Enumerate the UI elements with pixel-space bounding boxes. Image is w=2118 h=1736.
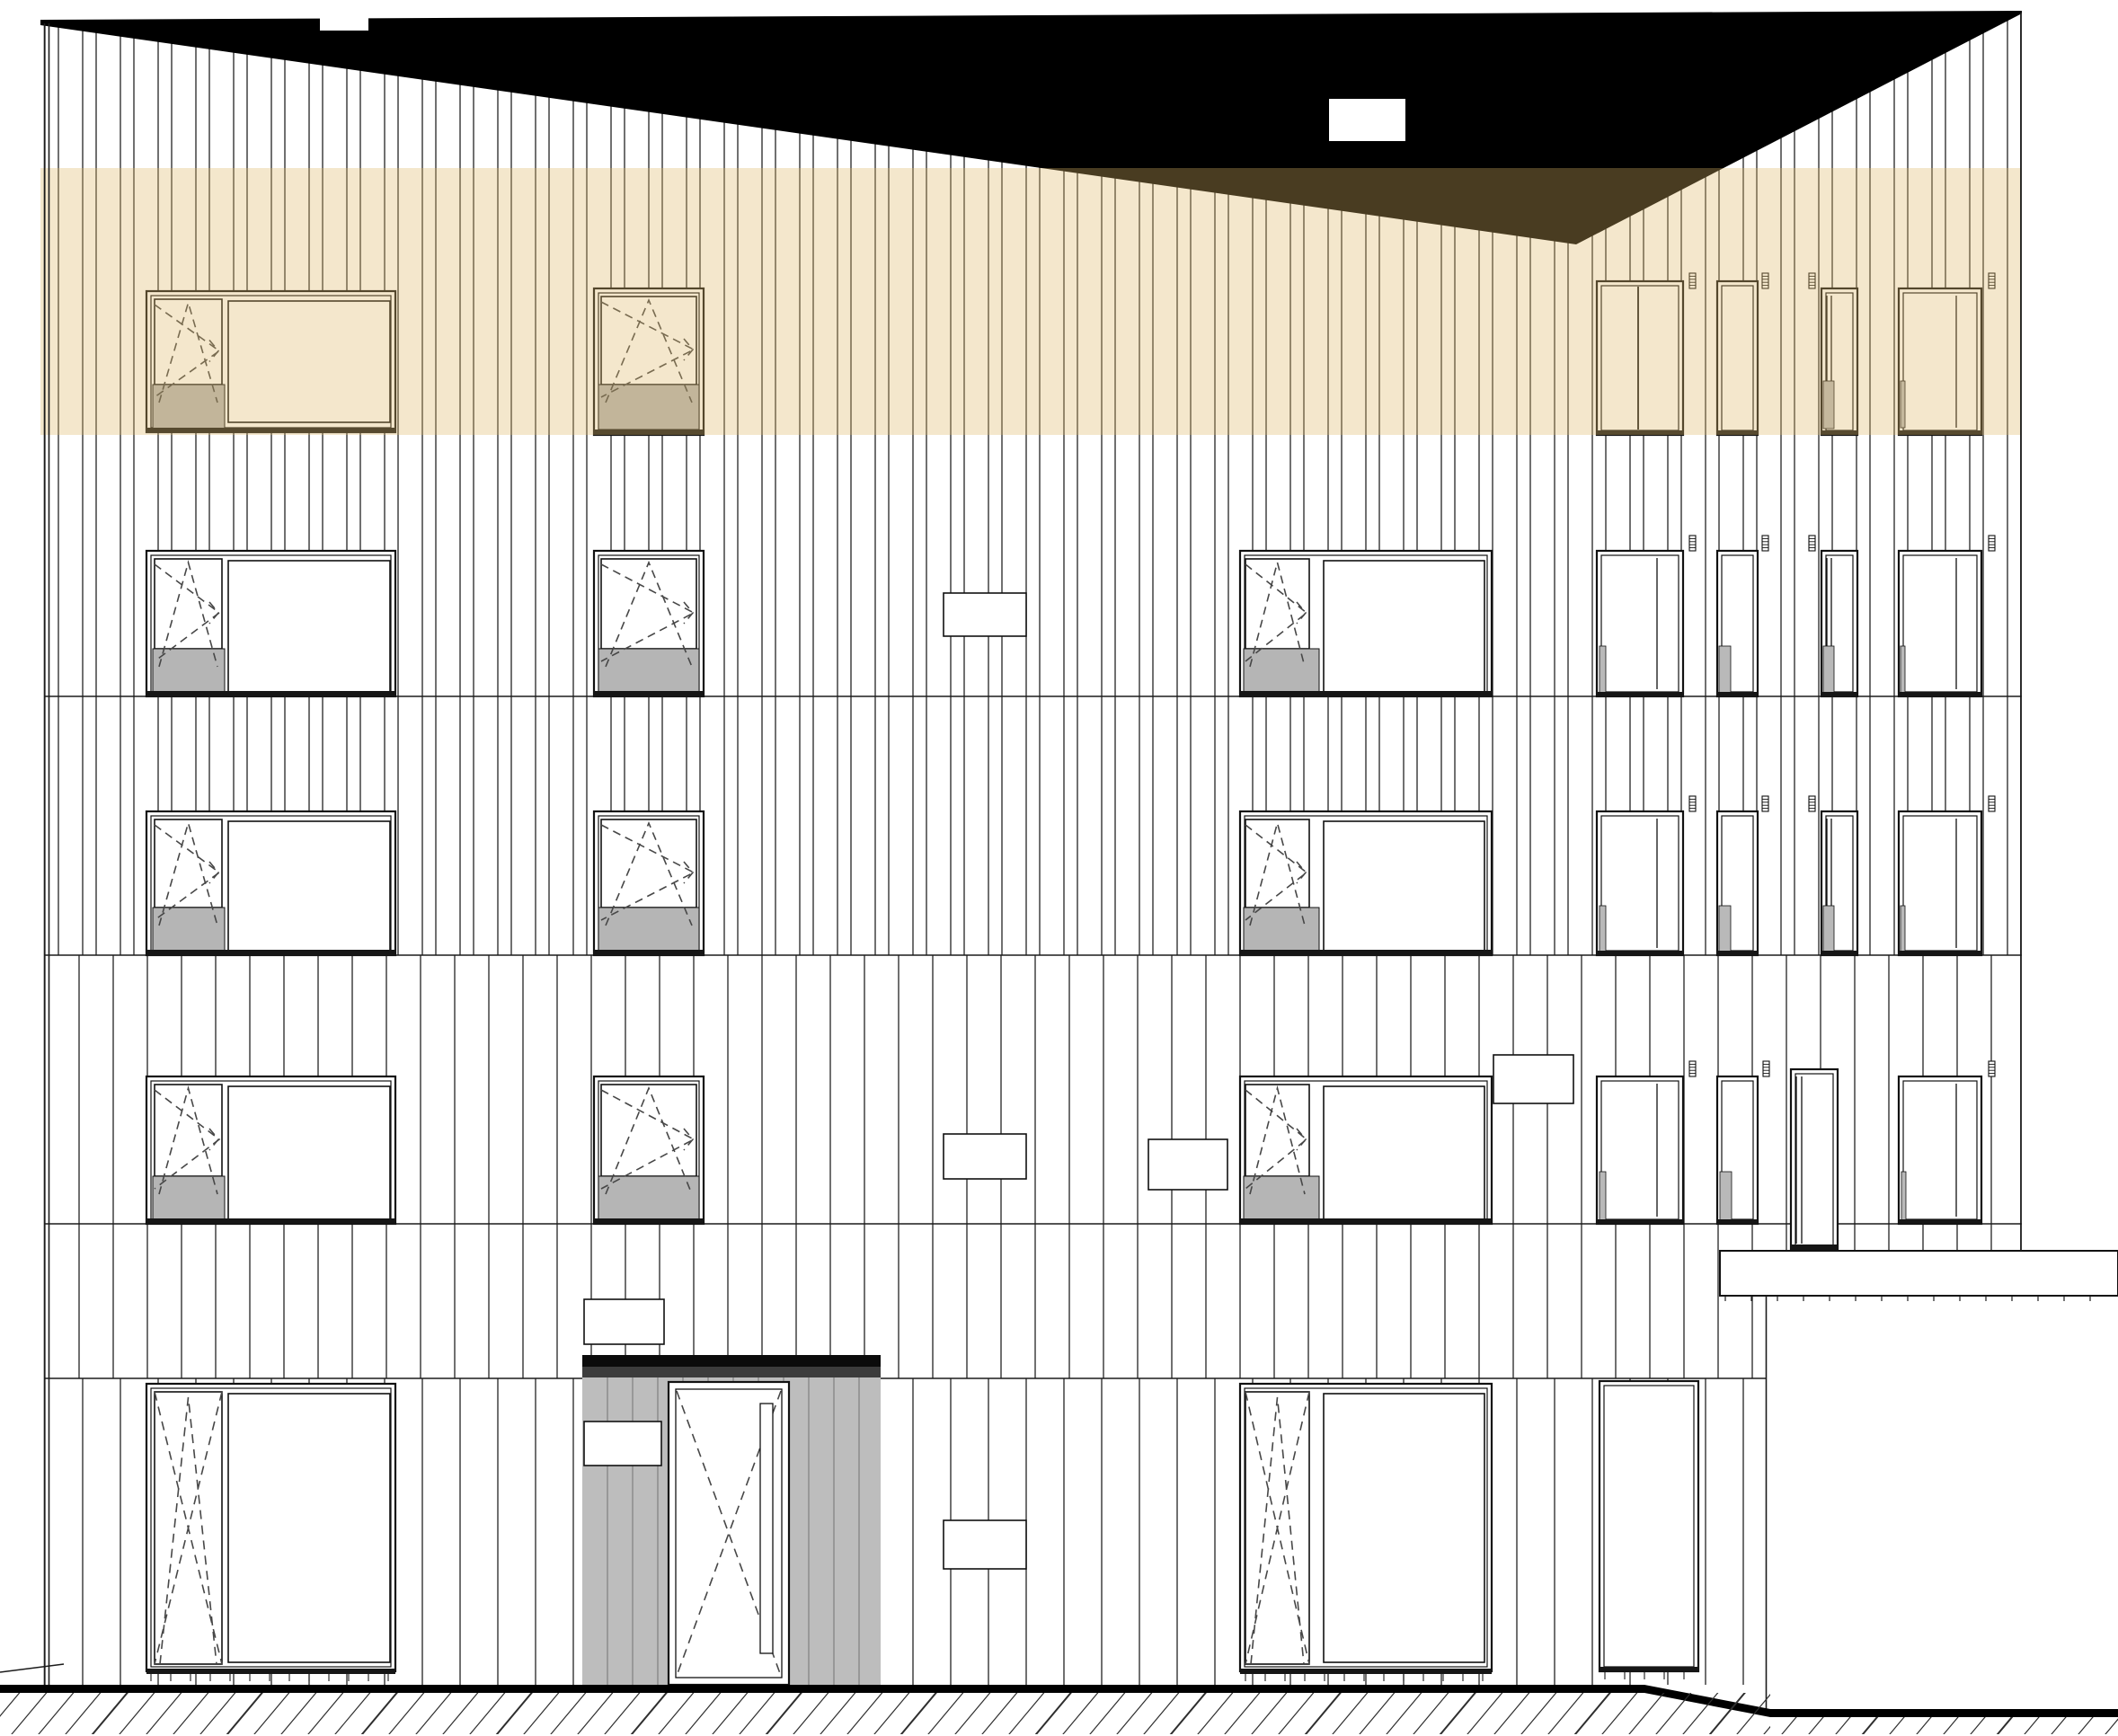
spandrel-panel (1244, 908, 1319, 951)
window-a3 (146, 811, 395, 955)
open-sash-sliver (1719, 646, 1731, 694)
roof-notch (320, 7, 368, 31)
window-frame (1597, 551, 1683, 696)
casement-sash (155, 559, 222, 649)
open-sash-sliver (1823, 906, 1834, 952)
ground-bar-left (0, 1685, 1644, 1693)
vent-grille-box (1809, 536, 1815, 551)
vent-grille (1763, 1061, 1769, 1076)
window-sill (1899, 951, 1981, 955)
window-e2 (1717, 551, 1758, 696)
fixed-glazing (1324, 1086, 1484, 1219)
window-c2 (1240, 551, 1492, 697)
window-sill (1821, 692, 1857, 696)
window-d2 (1597, 551, 1683, 696)
vent-grille (1809, 796, 1815, 811)
fixed-glazing (1324, 1394, 1484, 1662)
window-sill (1240, 1218, 1492, 1225)
window-frame (1899, 811, 1981, 955)
vent-grille-box (1763, 1061, 1769, 1076)
window-g3 (1899, 811, 1981, 955)
window-sill (1240, 691, 1492, 697)
vent-grille (1762, 536, 1768, 551)
window-a-gf (146, 1384, 395, 1681)
window-c-gf (1240, 1384, 1492, 1681)
window-c4 (1240, 1076, 1492, 1225)
window-g4 (1899, 1076, 1981, 1224)
fixed-glazing (1324, 821, 1484, 951)
entrance (582, 1355, 881, 1685)
vent-grille (1989, 796, 1995, 811)
window-f3 (1821, 811, 1857, 955)
fixed-glazing (228, 561, 390, 692)
window-a2 (146, 551, 395, 696)
vent-grille (1689, 796, 1696, 811)
window-sill (1240, 1669, 1492, 1674)
louvre-gf (944, 1520, 1026, 1569)
vent-grille-box (1989, 536, 1995, 551)
fixed-glazing (228, 1086, 390, 1219)
spandrel-panel (1244, 649, 1319, 692)
window-frame (1899, 1076, 1981, 1224)
louvre-entry (584, 1299, 664, 1344)
vent-grille-box (1689, 536, 1696, 551)
open-sash-sliver (1600, 906, 1606, 952)
vent-grille (1989, 536, 1995, 551)
louvre-l2 (944, 593, 1026, 636)
spandrel-panel (1244, 1176, 1319, 1219)
window-frame (1600, 1381, 1698, 1671)
window-frame (1597, 811, 1683, 955)
window-sill (1899, 1219, 1981, 1224)
open-sash-sliver (1901, 646, 1905, 694)
window-sill (1240, 950, 1492, 956)
window-frame (1899, 551, 1981, 696)
window-frame (1791, 1069, 1838, 1251)
louvre-l4c (1493, 1055, 1573, 1103)
open-sash-sliver (1720, 1172, 1732, 1221)
vent-grille-box (1762, 796, 1768, 811)
window-sill (594, 1218, 704, 1224)
balcony-slab (1720, 1251, 2118, 1296)
fixed-glazing (1324, 561, 1484, 692)
louvre-l4a (944, 1134, 1026, 1179)
top-storey-highlight-overlay (40, 168, 2022, 435)
fixed-glazing (228, 821, 390, 951)
balcony-door (1791, 1069, 1838, 1251)
window-e4 (1717, 1076, 1758, 1224)
open-sash-sliver (1823, 646, 1834, 694)
elevation-canvas (0, 0, 2118, 1736)
window-e3 (1717, 811, 1758, 955)
window-sill (1821, 951, 1857, 955)
vent-grille (1762, 796, 1768, 811)
entrance-canopy-fascia (582, 1367, 881, 1377)
window-sill (146, 1669, 395, 1674)
window-sill (594, 691, 704, 696)
vent-grille-box (1809, 796, 1815, 811)
window-gf-right (1600, 1381, 1698, 1679)
vent-grille-box (1762, 536, 1768, 551)
casement-sash (1245, 819, 1309, 908)
window-sill (1597, 692, 1683, 696)
window-sill (1717, 692, 1758, 696)
window-sill (1600, 1667, 1698, 1671)
vent-grille-box (1989, 1061, 1995, 1076)
window-frame (1597, 1076, 1683, 1224)
open-sash-sliver (1719, 906, 1731, 952)
window-sill (146, 950, 395, 955)
window-f2 (1821, 551, 1857, 696)
window-d4 (1597, 1076, 1683, 1224)
vent-grille (1689, 536, 1696, 551)
window-b3 (594, 811, 704, 955)
open-sash-sliver (1600, 1172, 1606, 1221)
roof-skylight (1329, 99, 1405, 141)
window-sill (1717, 1219, 1758, 1224)
window-a4 (146, 1076, 395, 1224)
balcony (1720, 1251, 2118, 1301)
window-sill (1597, 951, 1683, 955)
window-sill (1791, 1244, 1838, 1251)
window-sill (594, 950, 704, 955)
vent-grille (1689, 1061, 1696, 1076)
vent-grille-box (1989, 796, 1995, 811)
louvre-l4b (1148, 1139, 1227, 1190)
open-sash-sliver (1600, 646, 1606, 694)
window-sill (1597, 1219, 1683, 1224)
window-b2 (594, 551, 704, 696)
vent-grille-box (1689, 796, 1696, 811)
open-sash-sliver (1901, 906, 1905, 952)
window-sill (1899, 692, 1981, 696)
recessed-void (1767, 1296, 2118, 1710)
vent-grille (1809, 536, 1815, 551)
fixed-glazing (228, 1394, 390, 1662)
vent-grille (1989, 1061, 1995, 1076)
ground-bar-right (1770, 1709, 2118, 1717)
entrance-sign-panel (584, 1422, 661, 1466)
window-sill (146, 691, 395, 696)
window-sill (1717, 951, 1758, 955)
casement-sash (155, 819, 222, 908)
open-sash-sliver (1901, 1172, 1906, 1221)
entrance-canopy (582, 1355, 881, 1367)
window-b4 (594, 1076, 704, 1224)
window-sill (146, 1218, 395, 1224)
casement-sash (155, 1085, 222, 1176)
door-glazing-slit (760, 1404, 773, 1653)
window-g2 (1899, 551, 1981, 696)
window-c3 (1240, 811, 1492, 956)
elevation-drawing (0, 0, 2118, 1736)
window-d3 (1597, 811, 1683, 955)
vent-grille-box (1689, 1061, 1696, 1076)
